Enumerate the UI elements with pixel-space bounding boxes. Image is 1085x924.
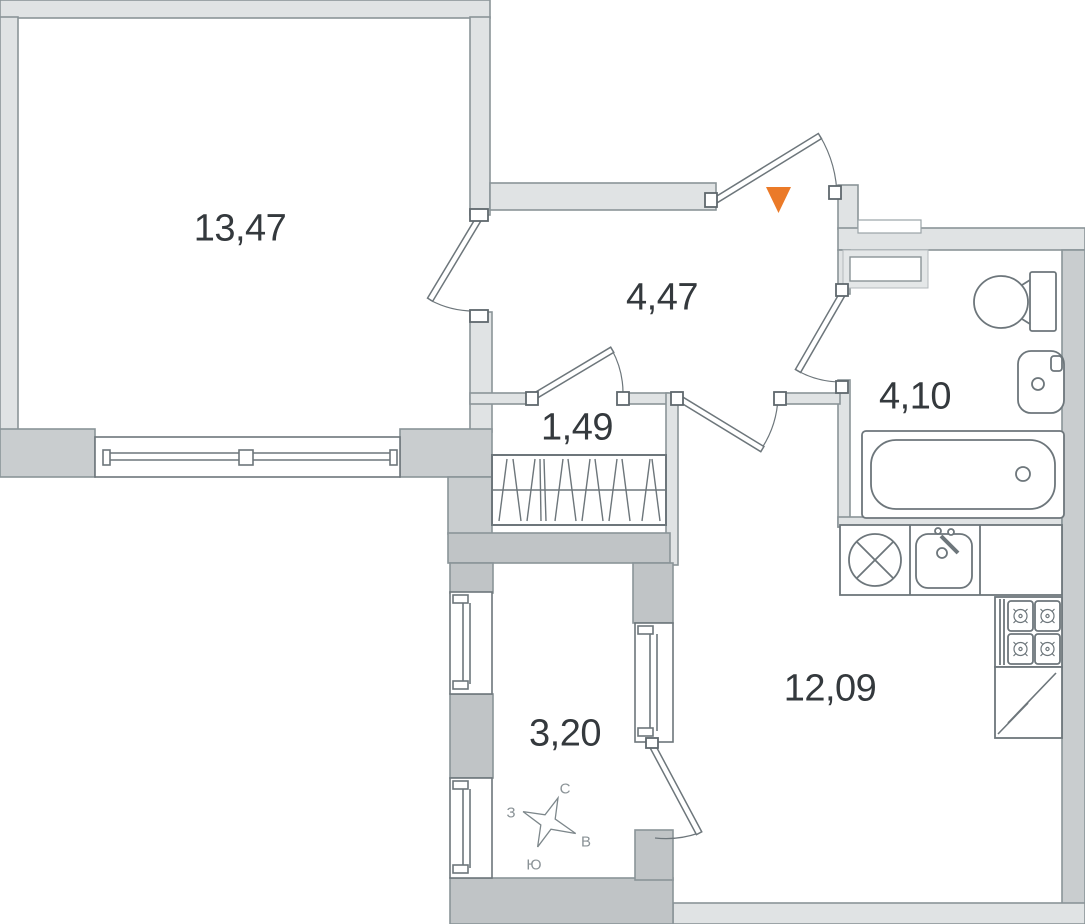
wall-segment — [1062, 250, 1085, 907]
wall-segment — [490, 183, 716, 210]
area-label-hallway: 4,47 — [626, 277, 698, 320]
wall-segment — [470, 312, 492, 432]
wall-segment — [448, 533, 670, 563]
washing-machine-icon — [849, 534, 901, 586]
area-label-living-room: 13,47 — [194, 208, 287, 251]
area-label-kitchen-living: 12,09 — [784, 668, 877, 711]
wall-segment — [635, 830, 673, 880]
wall-segment — [0, 0, 490, 18]
door-living-room — [428, 209, 488, 322]
compass-rose-icon — [513, 788, 586, 859]
stove-icon — [995, 597, 1062, 667]
entrance-arrow-icon — [766, 187, 791, 213]
window-balcony-left-upper — [450, 592, 492, 694]
wall-segment — [400, 429, 492, 477]
window-balcony-right — [635, 623, 673, 742]
compass-west-label: З — [506, 805, 515, 822]
compass-east-label: В — [581, 834, 591, 851]
wardrobe-icon — [492, 455, 666, 525]
toilet-icon — [974, 272, 1056, 331]
wall-segment — [450, 878, 673, 924]
wall-segment — [673, 903, 1085, 924]
floor-plan: 13,47 4,47 1,49 4,10 12,09 3,20 С З В Ю — [0, 0, 1085, 924]
door-kitchen — [671, 392, 786, 452]
floor-plan-drawing — [0, 0, 1085, 924]
area-label-bathroom: 4,10 — [879, 376, 951, 419]
compass-south-label: Ю — [526, 857, 541, 874]
wall-segment — [781, 393, 840, 404]
wall-segment — [0, 429, 95, 477]
door-bathroom — [795, 284, 848, 393]
wall-segment — [448, 477, 492, 534]
fridge-icon — [995, 667, 1062, 738]
kitchen-sink-icon — [916, 528, 972, 588]
door-balcony — [646, 738, 702, 839]
sink-icon — [1018, 351, 1064, 413]
bathtub-icon — [862, 431, 1064, 518]
window-living-room — [95, 437, 400, 477]
wall-segment — [0, 17, 18, 431]
wall-segment — [450, 563, 493, 593]
fixtures — [492, 272, 1064, 738]
wall-segment — [450, 694, 493, 778]
compass-north-label: С — [560, 781, 571, 798]
door-closet — [526, 347, 629, 405]
area-label-balcony: 3,20 — [529, 713, 601, 756]
wall-segment — [633, 563, 673, 623]
window-balcony-left-lower — [450, 778, 492, 878]
wall-segment — [470, 17, 490, 215]
wall-segment — [470, 393, 533, 404]
area-label-closet: 1,49 — [541, 407, 613, 450]
